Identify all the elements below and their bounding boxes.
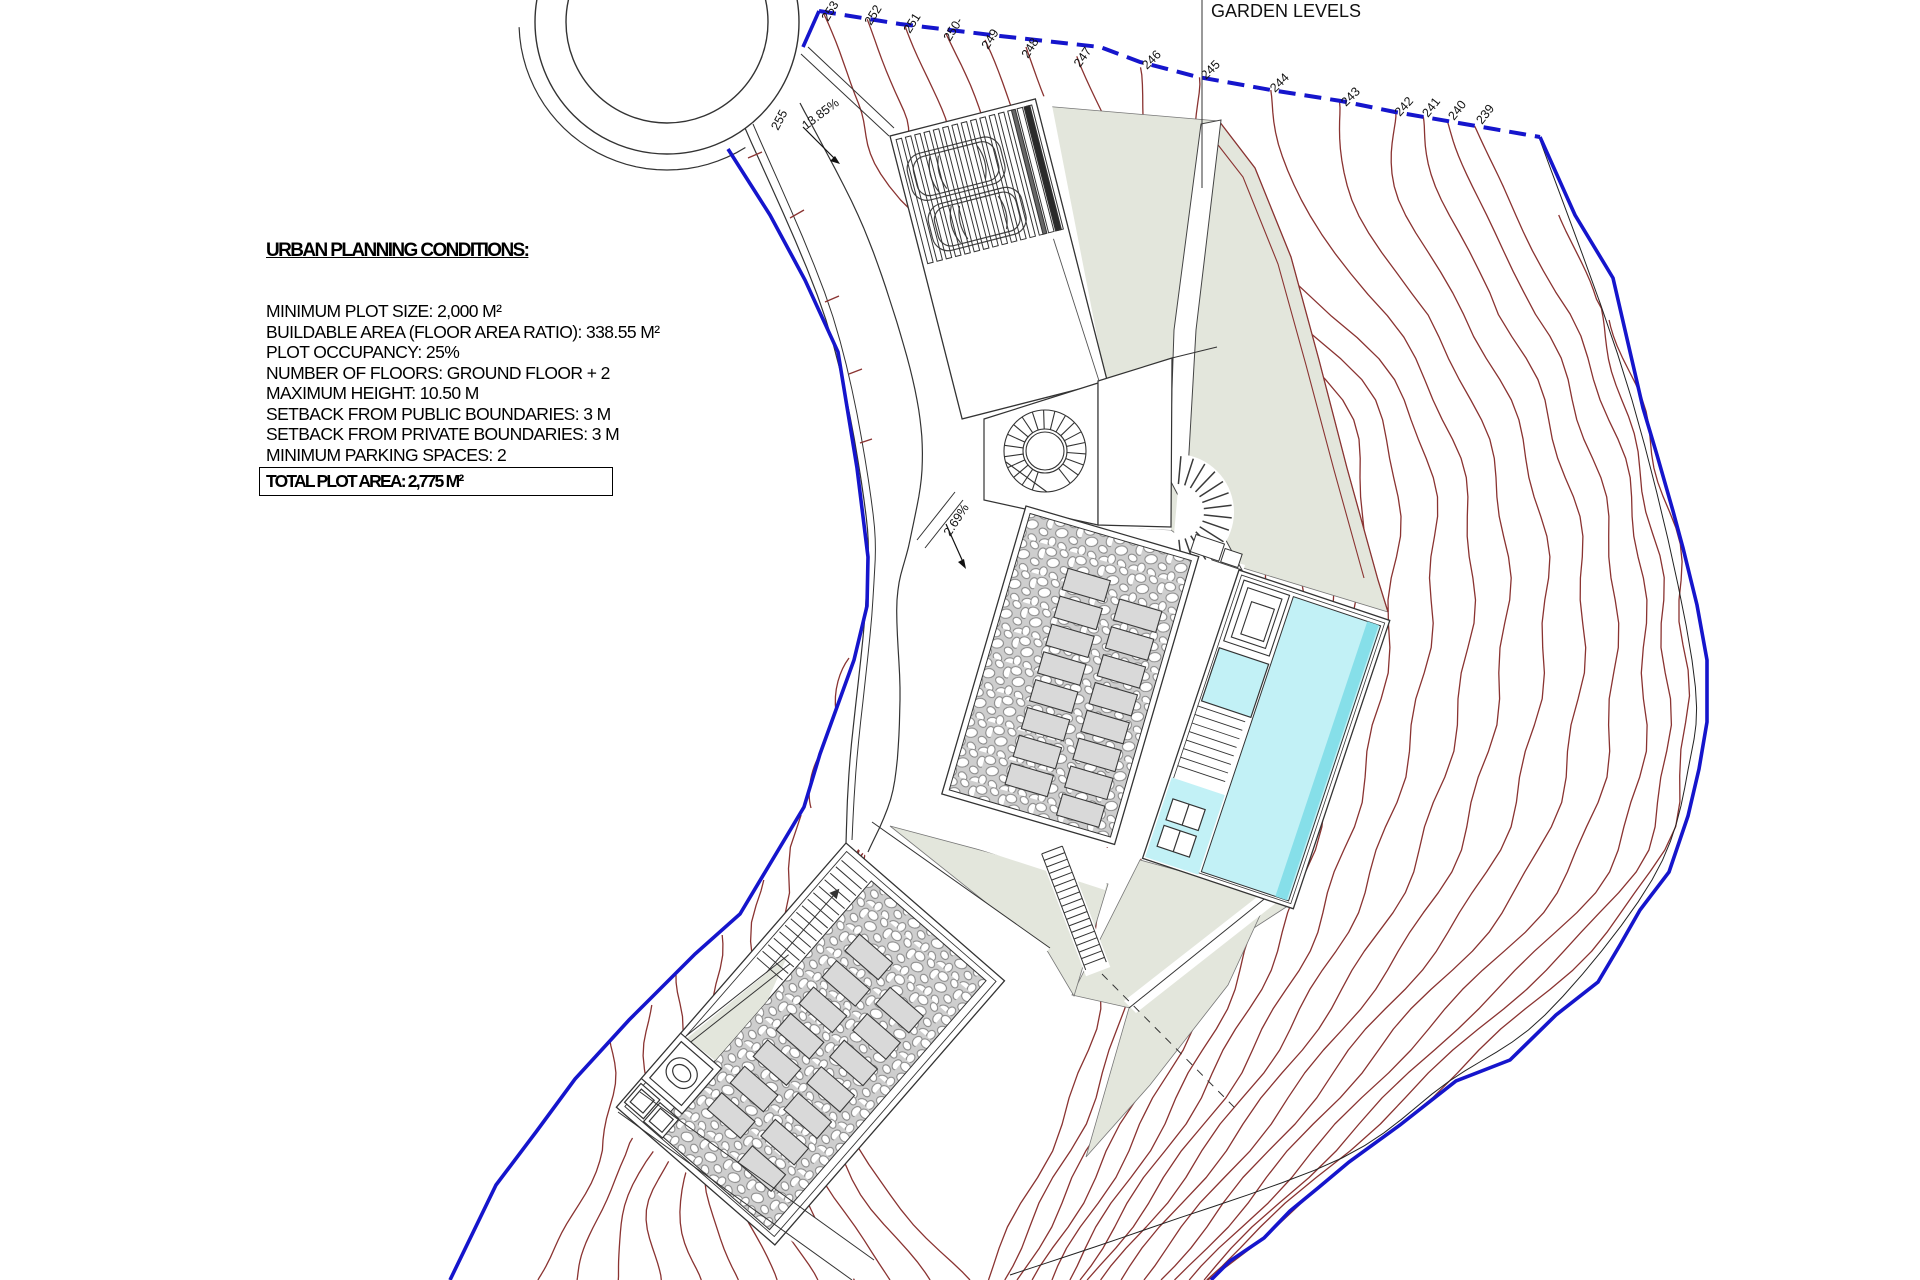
svg-text:GARDEN LEVELS: GARDEN LEVELS <box>1211 1 1361 21</box>
